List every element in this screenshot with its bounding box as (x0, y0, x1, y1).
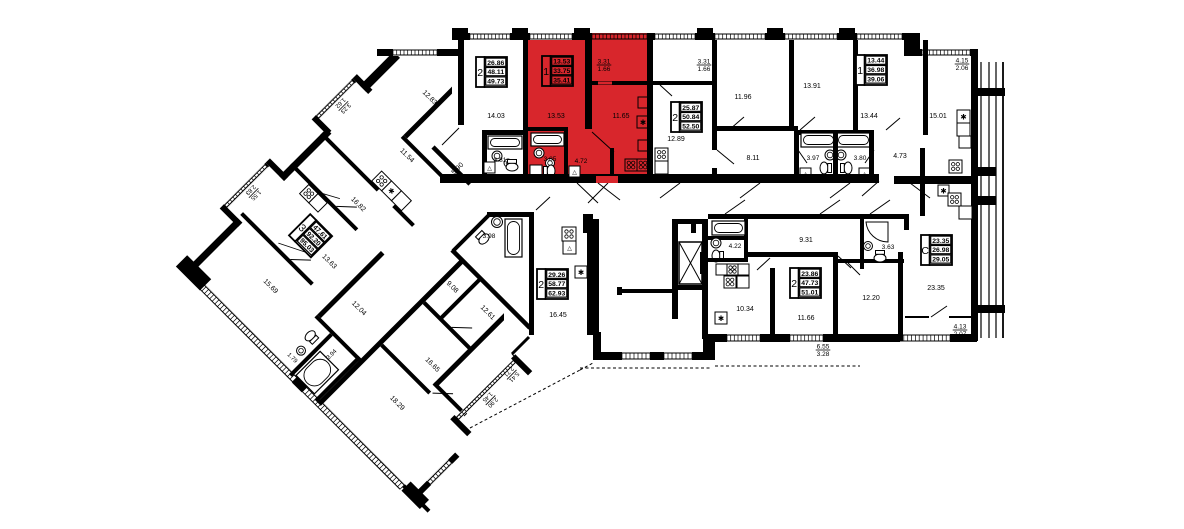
svg-text:13.44: 13.44 (860, 113, 878, 120)
svg-text:49.73: 49.73 (487, 79, 504, 86)
svg-text:62.93: 62.93 (548, 291, 565, 298)
svg-text:3.31: 3.31 (698, 59, 711, 66)
svg-text:3.81: 3.81 (494, 157, 507, 164)
svg-text:29.26: 29.26 (548, 272, 565, 279)
svg-text:C: C (921, 245, 929, 257)
svg-text:1.66: 1.66 (598, 66, 611, 73)
svg-text:29.05: 29.05 (932, 257, 949, 264)
svg-text:3.80: 3.80 (854, 155, 867, 162)
svg-text:2: 2 (791, 278, 797, 290)
svg-text:39.06: 39.06 (867, 77, 884, 84)
svg-text:3.31: 3.31 (598, 59, 611, 66)
svg-text:3.97: 3.97 (807, 155, 820, 162)
svg-text:4.73: 4.73 (893, 153, 907, 160)
svg-text:15.01: 15.01 (929, 113, 947, 120)
svg-text:✱: ✱ (640, 118, 647, 127)
svg-text:2: 2 (477, 67, 483, 79)
svg-text:11.66: 11.66 (798, 315, 815, 322)
svg-text:12.89: 12.89 (667, 136, 685, 143)
svg-text:33.75: 33.75 (553, 68, 570, 75)
svg-text:47.73: 47.73 (801, 280, 818, 287)
svg-text:16.45: 16.45 (549, 312, 567, 319)
svg-text:1: 1 (857, 65, 863, 77)
svg-text:✱: ✱ (578, 268, 585, 277)
svg-text:23.35: 23.35 (927, 285, 945, 292)
svg-text:13.44: 13.44 (867, 58, 884, 65)
svg-text:2: 2 (672, 112, 678, 124)
svg-text:✱: ✱ (940, 186, 947, 195)
svg-text:4.72: 4.72 (575, 158, 588, 165)
svg-text:3.85: 3.85 (544, 156, 557, 163)
svg-text:2.06: 2.06 (956, 65, 969, 72)
svg-text:26.86: 26.86 (487, 60, 504, 67)
svg-text:2: 2 (538, 279, 544, 291)
svg-text:23.86: 23.86 (801, 271, 818, 278)
svg-text:35.41: 35.41 (553, 78, 570, 85)
svg-text:36.98: 36.98 (867, 67, 884, 74)
svg-text:26.98: 26.98 (932, 247, 949, 254)
svg-text:✱: ✱ (718, 314, 725, 323)
svg-text:51.01: 51.01 (801, 290, 818, 297)
svg-text:✱: ✱ (960, 112, 967, 121)
svg-text:52.50: 52.50 (682, 124, 699, 131)
svg-text:58.77: 58.77 (548, 281, 565, 288)
svg-text:6.55: 6.55 (817, 344, 830, 351)
svg-text:13.53: 13.53 (553, 59, 570, 66)
svg-text:△: △ (567, 246, 572, 252)
svg-text:4.22: 4.22 (729, 243, 742, 250)
svg-text:13.53: 13.53 (547, 113, 565, 120)
svg-text:48.11: 48.11 (487, 69, 504, 76)
svg-text:14.03: 14.03 (487, 113, 505, 120)
svg-text:8.11: 8.11 (746, 155, 759, 162)
svg-text:△: △ (487, 166, 492, 172)
svg-text:23.35: 23.35 (932, 238, 949, 245)
svg-text:11.65: 11.65 (613, 113, 630, 120)
svg-text:4.13: 4.13 (954, 324, 967, 331)
svg-text:3.63: 3.63 (882, 244, 895, 251)
svg-text:12.20: 12.20 (862, 295, 880, 302)
svg-text:3.28: 3.28 (817, 351, 830, 358)
svg-text:50.84: 50.84 (682, 114, 699, 121)
svg-text:△: △ (572, 170, 577, 176)
svg-text:9.31: 9.31 (799, 237, 813, 244)
svg-text:13.91: 13.91 (803, 83, 821, 90)
svg-text:10.34: 10.34 (736, 306, 754, 313)
svg-text:25.87: 25.87 (682, 105, 699, 112)
svg-text:11.96: 11.96 (735, 94, 752, 101)
svg-text:1: 1 (543, 66, 549, 78)
svg-text:4.15: 4.15 (956, 58, 969, 65)
svg-text:1.66: 1.66 (698, 66, 711, 73)
svg-text:3.98: 3.98 (483, 233, 496, 240)
